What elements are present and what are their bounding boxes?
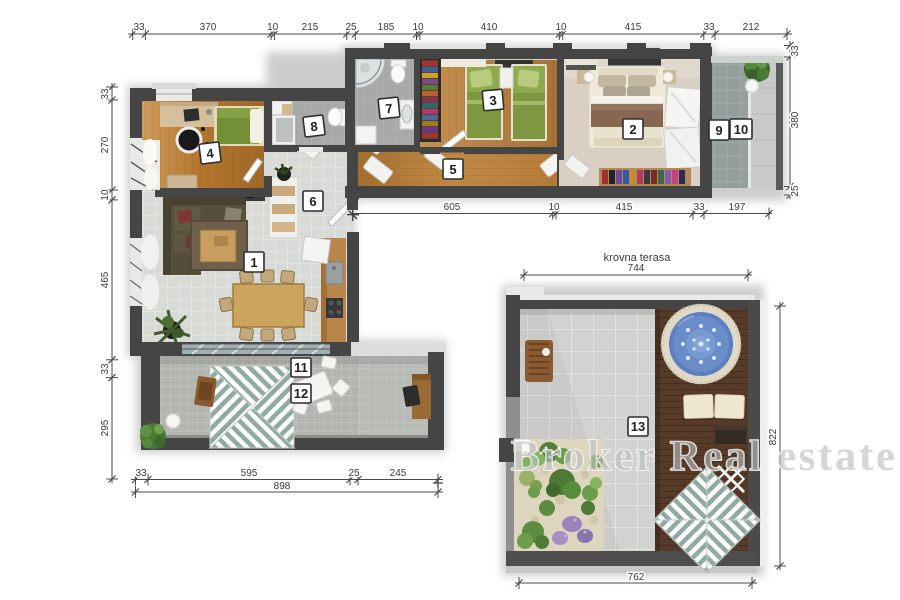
svg-text:3: 3: [489, 93, 498, 109]
svg-text:10: 10: [412, 22, 424, 33]
svg-text:10: 10: [555, 22, 567, 33]
svg-text:295: 295: [100, 419, 111, 436]
svg-text:2: 2: [629, 122, 636, 137]
svg-text:33: 33: [100, 363, 111, 375]
svg-text:605: 605: [444, 202, 461, 213]
svg-text:33: 33: [133, 22, 145, 33]
svg-text:5: 5: [449, 162, 456, 177]
svg-text:1: 1: [250, 255, 257, 270]
svg-text:Broker Real estate: Broker Real estate: [511, 433, 895, 480]
svg-text:33: 33: [790, 45, 801, 57]
svg-text:185: 185: [378, 22, 395, 33]
svg-text:270: 270: [100, 136, 111, 153]
svg-text:410: 410: [481, 22, 498, 33]
svg-text:245: 245: [390, 468, 407, 479]
svg-text:25: 25: [348, 468, 360, 479]
svg-text:212: 212: [743, 22, 760, 33]
svg-text:33: 33: [135, 468, 147, 479]
svg-text:13: 13: [631, 419, 645, 434]
svg-text:415: 415: [625, 22, 642, 33]
svg-text:215: 215: [302, 22, 319, 33]
svg-text:380: 380: [790, 111, 801, 128]
svg-text:33: 33: [693, 202, 705, 213]
svg-text:25: 25: [345, 22, 357, 33]
svg-text:10: 10: [734, 122, 748, 137]
svg-text:898: 898: [274, 481, 291, 492]
svg-text:6: 6: [309, 194, 316, 209]
svg-text:33: 33: [703, 22, 715, 33]
svg-text:744: 744: [628, 263, 645, 274]
svg-text:10: 10: [548, 202, 560, 213]
svg-text:370: 370: [200, 22, 217, 33]
svg-text:7: 7: [385, 101, 394, 117]
svg-text:12: 12: [294, 386, 308, 401]
svg-text:25: 25: [790, 185, 801, 197]
svg-text:11: 11: [294, 360, 308, 375]
svg-text:197: 197: [729, 202, 746, 213]
svg-text:9: 9: [715, 123, 722, 138]
svg-text:595: 595: [241, 468, 258, 479]
svg-text:762: 762: [628, 572, 645, 583]
svg-text:415: 415: [616, 202, 633, 213]
svg-text:10: 10: [100, 189, 111, 201]
svg-text:33: 33: [100, 88, 111, 100]
svg-text:10: 10: [267, 22, 279, 33]
svg-text:465: 465: [100, 271, 111, 288]
